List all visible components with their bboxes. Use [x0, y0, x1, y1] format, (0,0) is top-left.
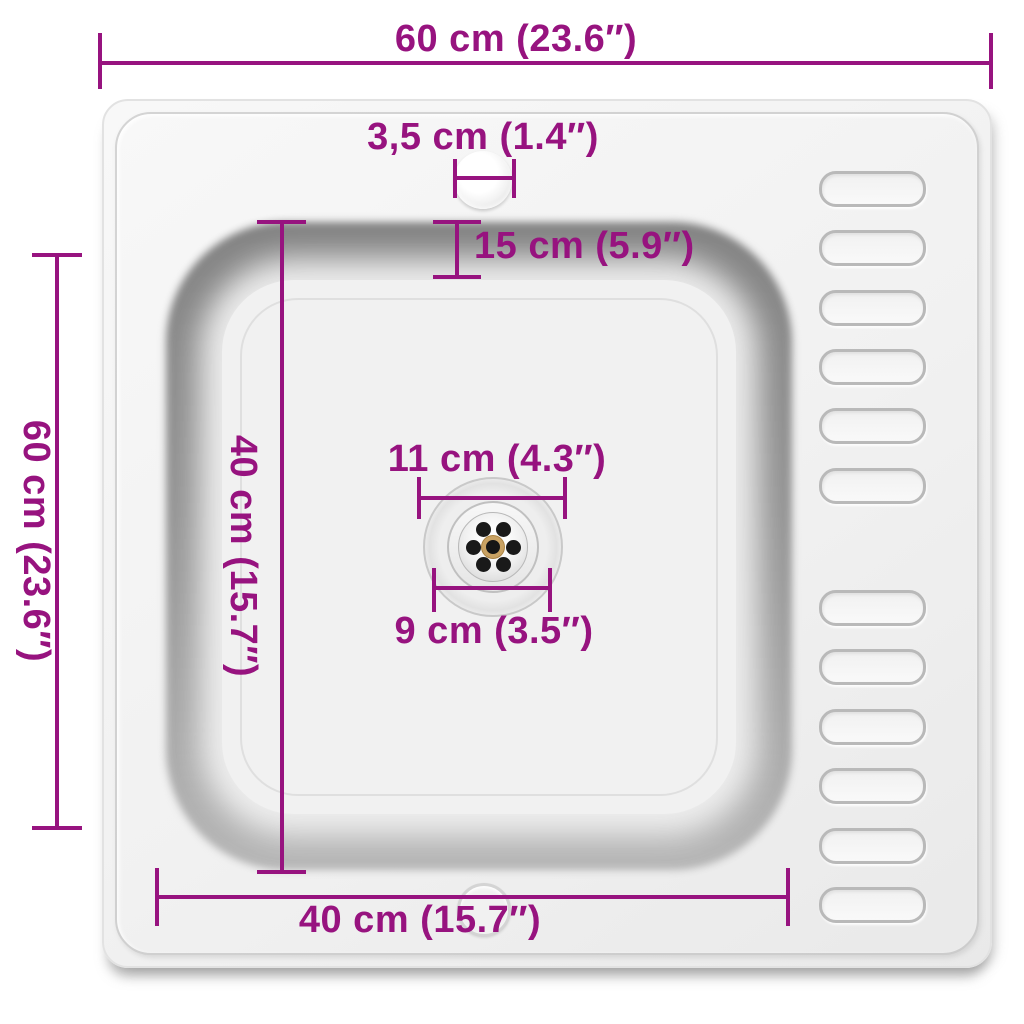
- dim-drain-outer-tick-left: [417, 477, 421, 519]
- dim-overall-width-tick-right: [989, 33, 993, 89]
- drainboard-groove: [819, 468, 926, 504]
- dim-basin-width-label: 40 cm (15.7″): [299, 901, 541, 939]
- dim-drain-inner-tick-right: [548, 568, 552, 612]
- dim-overall-depth-tick-top: [32, 253, 82, 257]
- dim-overall-width-tick-left: [98, 33, 102, 89]
- drainboard-groove: [819, 349, 926, 385]
- dim-basin-depth-tick-bottom: [257, 870, 306, 874]
- dim-faucet-hole-tick-left: [453, 159, 457, 198]
- dim-drain-outer-line: [419, 496, 565, 500]
- dim-drain-inner-line: [434, 586, 552, 590]
- drainboard-groove: [819, 171, 926, 207]
- drainboard-groove: [819, 828, 926, 864]
- drainboard-groove: [819, 768, 926, 804]
- dim-basin-width-tick-left: [155, 868, 159, 926]
- dim-drain-inner-label: 9 cm (3.5″): [394, 612, 593, 650]
- drainboard-groove: [819, 887, 926, 923]
- dim-drain-outer-tick-right: [563, 477, 567, 519]
- strainer-hole: [476, 557, 491, 572]
- dim-basin-inset-label: 15 cm (5.9″): [474, 227, 695, 265]
- dim-faucet-hole-label: 3,5 cm (1.4″): [367, 118, 599, 156]
- dim-basin-depth-line: [280, 222, 284, 872]
- drainboard-groove: [819, 709, 926, 745]
- strainer-hole: [476, 522, 491, 537]
- sink-dimension-diagram: 60 cm (23.6″) 60 cm (23.6″) 40 cm (15.7″…: [0, 0, 1024, 1024]
- dim-basin-depth-label: 40 cm (15.7″): [224, 435, 262, 677]
- dim-faucet-hole-tick-right: [512, 159, 516, 198]
- dim-overall-width-label: 60 cm (23.6″): [395, 20, 637, 58]
- strainer-hole: [466, 540, 481, 555]
- strainer-hole: [496, 557, 511, 572]
- dim-basin-inset-line: [455, 222, 459, 277]
- drainboard-groove: [819, 649, 926, 685]
- strainer-hole: [506, 540, 521, 555]
- drainboard-groove: [819, 408, 926, 444]
- dim-basin-depth-tick-top: [257, 220, 306, 224]
- dim-overall-depth-tick-bottom: [32, 826, 82, 830]
- strainer-hole: [496, 522, 511, 537]
- dim-drain-inner-tick-left: [432, 568, 436, 612]
- drainboard-groove: [819, 230, 926, 266]
- dim-basin-width-tick-right: [786, 868, 790, 926]
- faucet-hole: [454, 151, 512, 209]
- dim-basin-inset-tick-bottom: [433, 275, 481, 279]
- dim-basin-inset-tick-top: [433, 220, 481, 224]
- drainboard-groove: [819, 290, 926, 326]
- drain-center-brass-ring: [482, 536, 504, 558]
- dim-drain-outer-label: 11 cm (4.3″): [388, 440, 607, 478]
- drainboard-groove: [819, 590, 926, 626]
- dim-overall-depth-label: 60 cm (23.6″): [17, 420, 55, 662]
- dim-faucet-hole-line: [455, 176, 516, 180]
- dim-overall-width-line: [100, 61, 991, 65]
